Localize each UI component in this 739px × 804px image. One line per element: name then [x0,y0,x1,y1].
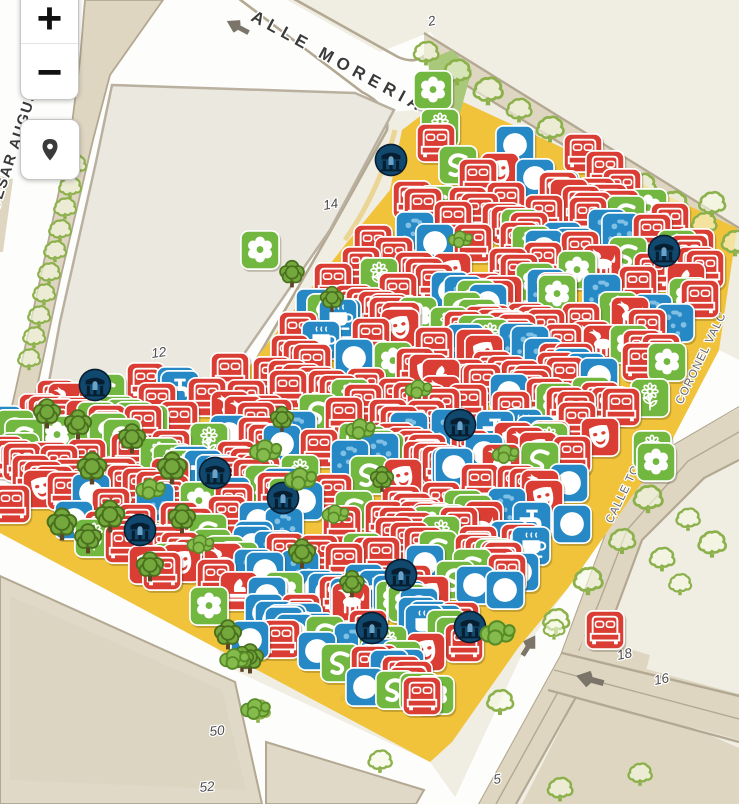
svg-text:14: 14 [322,196,339,213]
svg-text:52: 52 [199,778,216,795]
svg-text:12: 12 [150,344,167,361]
svg-text:50: 50 [209,722,226,739]
